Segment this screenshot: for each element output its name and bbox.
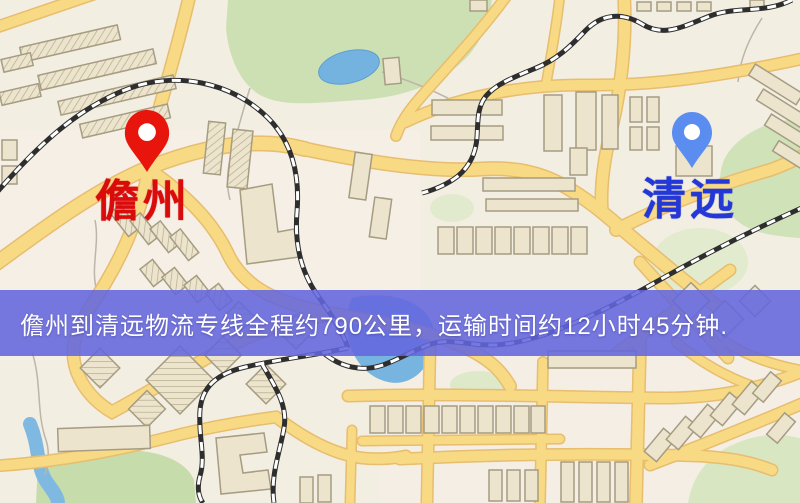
origin-city-label: 儋州 <box>95 180 191 224</box>
route-info-text: 儋州到清远物流专线全程约790公里，运输时间约12小时45分钟. <box>0 306 728 341</box>
origin-pin[interactable] <box>124 110 170 177</box>
map-container[interactable]: 儋州 清远 儋州到清远物流专线全程约790公里，运输时间约12小时45分钟. <box>0 0 800 503</box>
destination-pin[interactable] <box>671 112 713 173</box>
map-image[interactable] <box>0 0 800 503</box>
destination-pin-icon <box>671 112 713 168</box>
route-info-banner: 儋州到清远物流专线全程约790公里，运输时间约12小时45分钟. <box>0 290 800 356</box>
origin-pin-icon <box>124 110 170 172</box>
destination-city-label: 清远 <box>642 178 738 222</box>
